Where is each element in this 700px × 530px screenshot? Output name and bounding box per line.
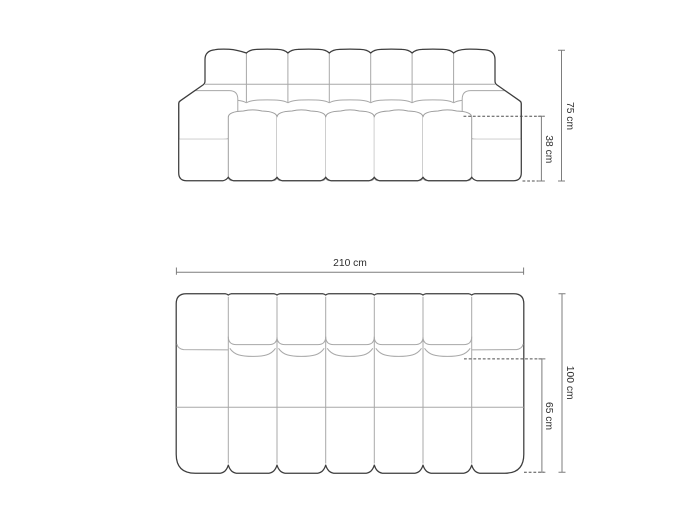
svg-text:65 cm: 65 cm <box>543 402 554 430</box>
svg-text:38 cm: 38 cm <box>543 135 554 163</box>
svg-text:100 cm: 100 cm <box>564 366 575 400</box>
svg-text:210 cm: 210 cm <box>333 258 367 269</box>
svg-text:75 cm: 75 cm <box>564 102 575 130</box>
